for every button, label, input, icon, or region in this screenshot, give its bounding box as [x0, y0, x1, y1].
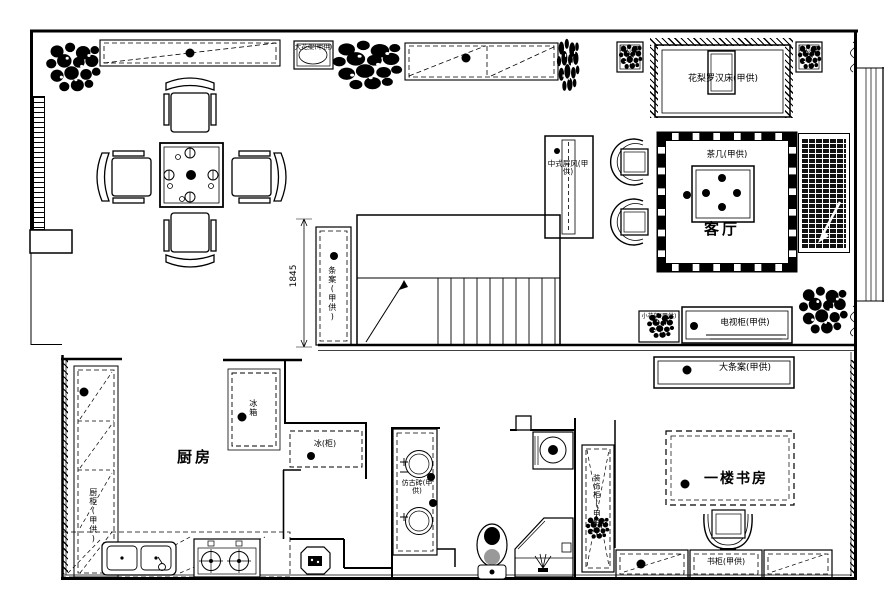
label-fridge: 冰箱: [248, 386, 257, 430]
dining-chair: [97, 151, 151, 203]
plant-icon: [557, 39, 580, 91]
floorplan-linework: [0, 0, 895, 604]
desk-chair: [704, 510, 752, 549]
armchair: [611, 139, 648, 185]
shower: [515, 518, 573, 577]
gas-stove: [194, 539, 260, 577]
staircase: [357, 215, 560, 345]
dining-chair: [232, 151, 286, 203]
dining-chair: [164, 213, 216, 267]
top-cabinet-right: [405, 43, 558, 80]
walls: [30, 30, 884, 579]
label-flower-rack-small: 小花架(甲供): [639, 314, 679, 321]
label-chinese-screen: 中式屏风(甲供): [544, 160, 592, 177]
label-antique-tile: 仿古砖(甲供): [399, 480, 435, 495]
washing-machine: [533, 432, 573, 469]
label-kitchen-cabinet: 厨柜(甲供): [88, 468, 97, 563]
plant-icon: [46, 43, 100, 92]
armchair: [611, 199, 648, 245]
wall-pier: [30, 230, 72, 253]
plant-icon: [799, 287, 848, 334]
label-console-table: 条案(甲供): [327, 248, 336, 340]
plant-icon: [333, 41, 402, 90]
label-flower-rack-large: 大花架(甲供): [293, 44, 334, 51]
lattice-arrow: [818, 202, 840, 243]
dining-table-set: [97, 78, 286, 267]
label-study: 一楼书房: [688, 472, 784, 487]
toilet: [477, 524, 507, 579]
label-decor-cabinet: 装饰柜(甲供): [592, 455, 600, 555]
floor-plan: 大花架(甲供) 边几(甲供) 边几(甲供) 花梨罗汉床(甲供) 中式屏风(甲供)…: [0, 0, 895, 604]
label-dimension-1845: 1845: [290, 262, 300, 290]
stool: [301, 547, 330, 574]
label-living-room: 客厅: [692, 221, 752, 238]
coffee-table: [683, 166, 754, 222]
chinese-screen: [545, 136, 593, 238]
kitchen-sink: [102, 542, 176, 575]
label-console-table-large: 大条案(甲供): [700, 364, 790, 374]
dining-chair: [164, 78, 216, 132]
label-luohan-bed: 花梨罗汉床(甲供): [659, 75, 787, 85]
label-tv-cabinet: 电视柜(甲供): [702, 319, 788, 328]
label-kitchen: 厨房: [166, 449, 224, 466]
label-coffee-table: 茶几(甲供): [696, 151, 758, 160]
top-cabinet-left: [100, 40, 280, 66]
label-freezer: 冰(柜): [308, 440, 342, 449]
study-desk: [666, 431, 794, 505]
freezer: [290, 431, 362, 467]
label-bookcase: 书柜(甲供): [692, 558, 760, 567]
label-side-table-left: 边几(甲供): [616, 47, 644, 60]
label-side-table-right: 边几(甲供): [795, 47, 823, 60]
